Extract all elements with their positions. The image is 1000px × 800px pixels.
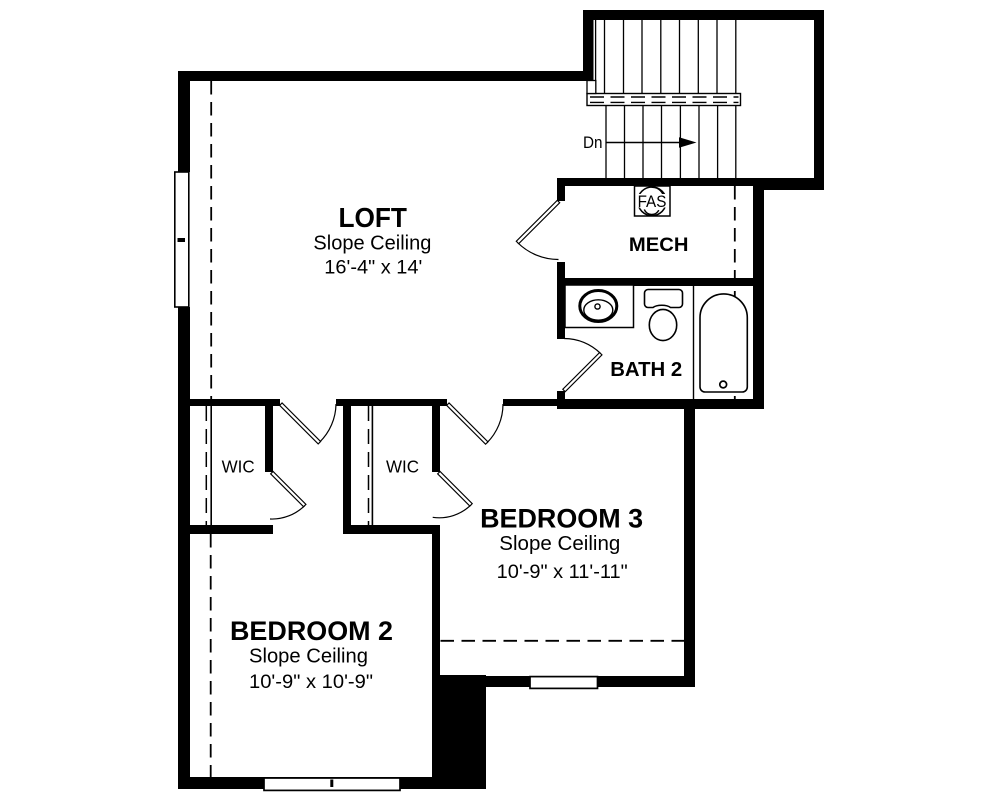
svg-text:WIC: WIC bbox=[222, 456, 255, 476]
svg-text:LOFT: LOFT bbox=[338, 202, 407, 233]
svg-text:MECH: MECH bbox=[629, 234, 689, 256]
svg-text:Slope Ceiling: Slope Ceiling bbox=[313, 231, 431, 254]
svg-text:BEDROOM 2: BEDROOM 2 bbox=[230, 616, 393, 646]
svg-text:10'-9" x 10'-9": 10'-9" x 10'-9" bbox=[249, 671, 373, 693]
svg-text:FAS: FAS bbox=[638, 193, 667, 211]
svg-text:BATH 2: BATH 2 bbox=[610, 358, 682, 381]
svg-text:Dn: Dn bbox=[583, 133, 603, 152]
svg-text:BEDROOM 3: BEDROOM 3 bbox=[480, 503, 643, 533]
svg-text:16'-4" x 14': 16'-4" x 14' bbox=[324, 257, 422, 279]
svg-text:10'-9" x 11'-11": 10'-9" x 11'-11" bbox=[497, 561, 628, 583]
svg-text:Slope Ceiling: Slope Ceiling bbox=[499, 532, 620, 555]
svg-text:WIC: WIC bbox=[386, 456, 419, 476]
svg-text:Slope Ceiling: Slope Ceiling bbox=[249, 644, 368, 667]
